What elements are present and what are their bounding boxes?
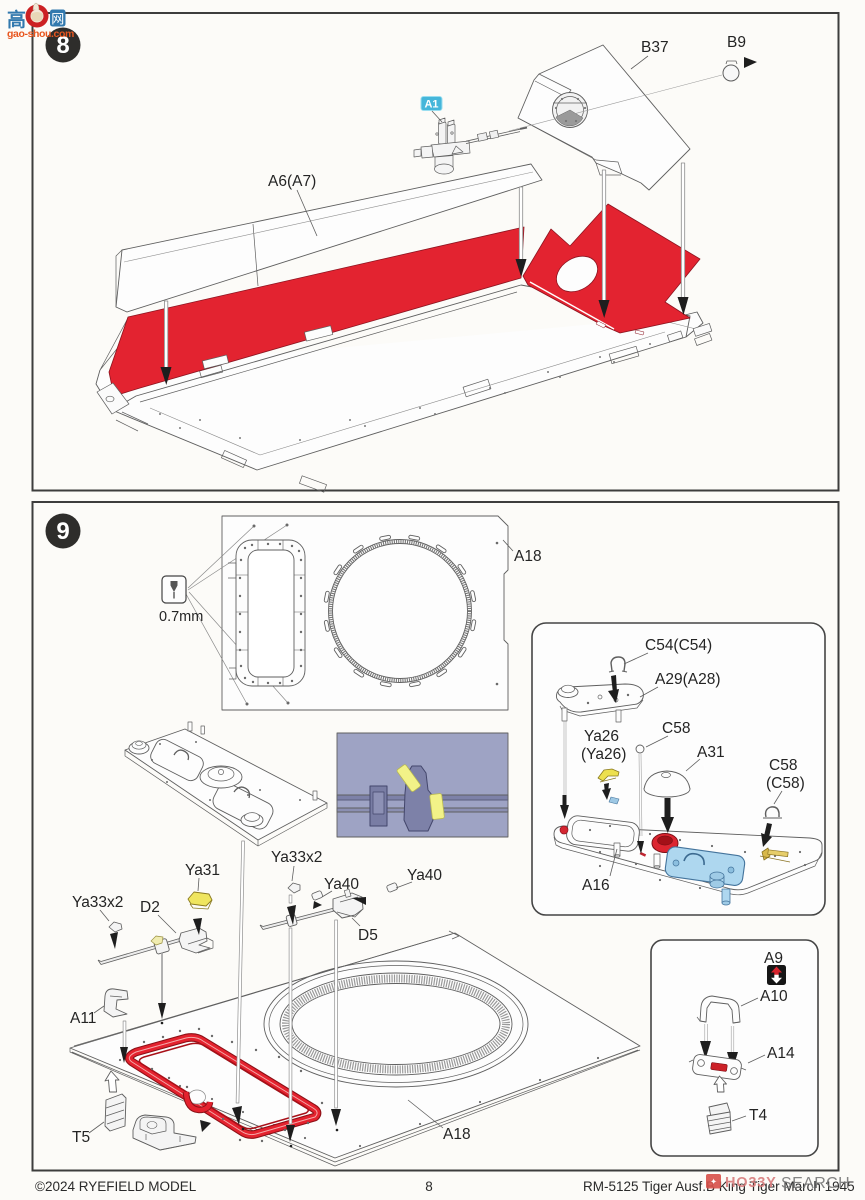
svg-text:Ya33x2: Ya33x2: [72, 894, 123, 911]
svg-text:网: 网: [51, 12, 64, 27]
svg-text:B9: B9: [727, 34, 746, 51]
svg-text:8: 8: [425, 1179, 433, 1194]
svg-text:HO33Y: HO33Y: [725, 1175, 777, 1191]
svg-text:©2024 RYEFIELD MODEL: ©2024 RYEFIELD MODEL: [35, 1179, 197, 1194]
svg-text:T4: T4: [749, 1107, 767, 1124]
svg-text:Ya33x2: Ya33x2: [271, 849, 322, 866]
svg-text:Ya40: Ya40: [324, 876, 359, 893]
svg-text:Ya31: Ya31: [185, 862, 220, 879]
svg-text:A11: A11: [70, 1010, 96, 1027]
svg-text:A18: A18: [443, 1126, 471, 1143]
svg-text:9: 9: [56, 518, 69, 545]
svg-text:A10: A10: [760, 988, 788, 1005]
svg-text:D5: D5: [358, 927, 378, 944]
svg-text:Ya40: Ya40: [407, 867, 442, 884]
svg-text:A18: A18: [514, 548, 542, 565]
svg-text:(Ya26): (Ya26): [581, 746, 626, 763]
svg-text:C58: C58: [662, 720, 690, 737]
svg-text:gao-shou.com: gao-shou.com: [7, 28, 74, 40]
svg-text:C58: C58: [769, 757, 797, 774]
svg-text:A9: A9: [764, 950, 783, 967]
svg-text:0.7mm: 0.7mm: [159, 609, 203, 625]
svg-text:A29(A28): A29(A28): [655, 671, 720, 688]
svg-text:(C58): (C58): [766, 775, 805, 792]
svg-text:A14: A14: [767, 1045, 795, 1062]
svg-text:SEARCH: SEARCH: [781, 1175, 850, 1192]
svg-text:A31: A31: [697, 744, 725, 761]
svg-text:A6(A7): A6(A7): [268, 173, 316, 190]
svg-text:Ya26: Ya26: [584, 728, 619, 745]
svg-text:T5: T5: [72, 1129, 90, 1146]
svg-text:C54(C54): C54(C54): [645, 637, 712, 654]
svg-text:B37: B37: [641, 39, 669, 56]
svg-text:✦: ✦: [710, 1177, 718, 1187]
svg-text:D2: D2: [140, 899, 160, 916]
svg-text:A1: A1: [424, 99, 438, 111]
svg-text:A16: A16: [582, 877, 610, 894]
